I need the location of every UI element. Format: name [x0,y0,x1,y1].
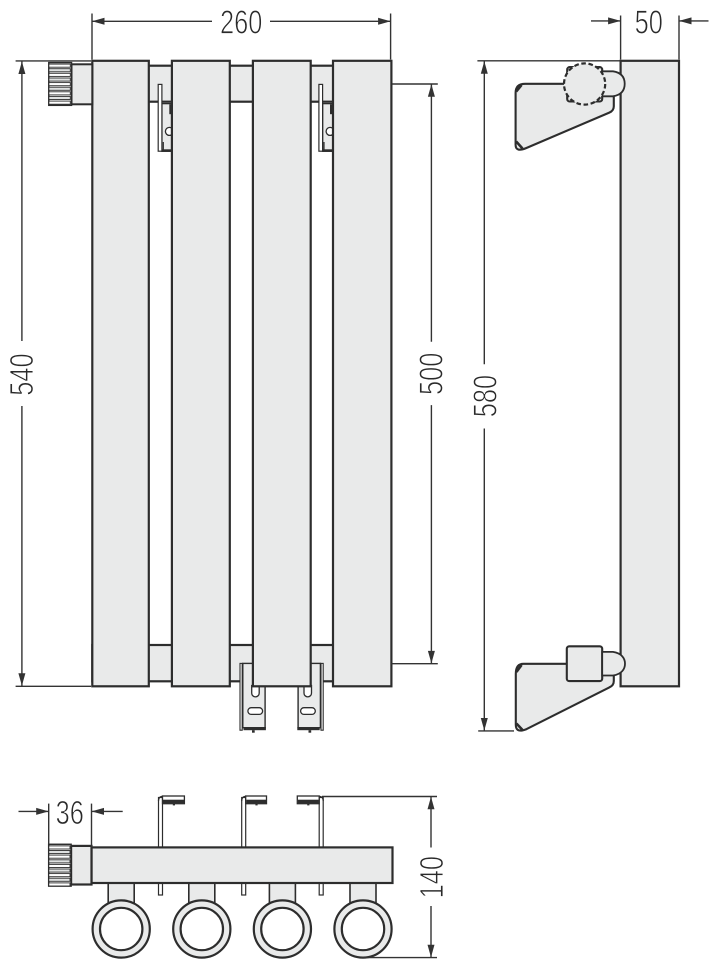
svg-text:50: 50 [635,4,663,41]
svg-text:36: 36 [56,795,84,832]
svg-text:580: 580 [467,375,504,417]
svg-text:260: 260 [220,4,262,41]
svg-text:540: 540 [4,353,41,395]
svg-text:140: 140 [414,856,451,898]
svg-text:500: 500 [413,353,450,395]
